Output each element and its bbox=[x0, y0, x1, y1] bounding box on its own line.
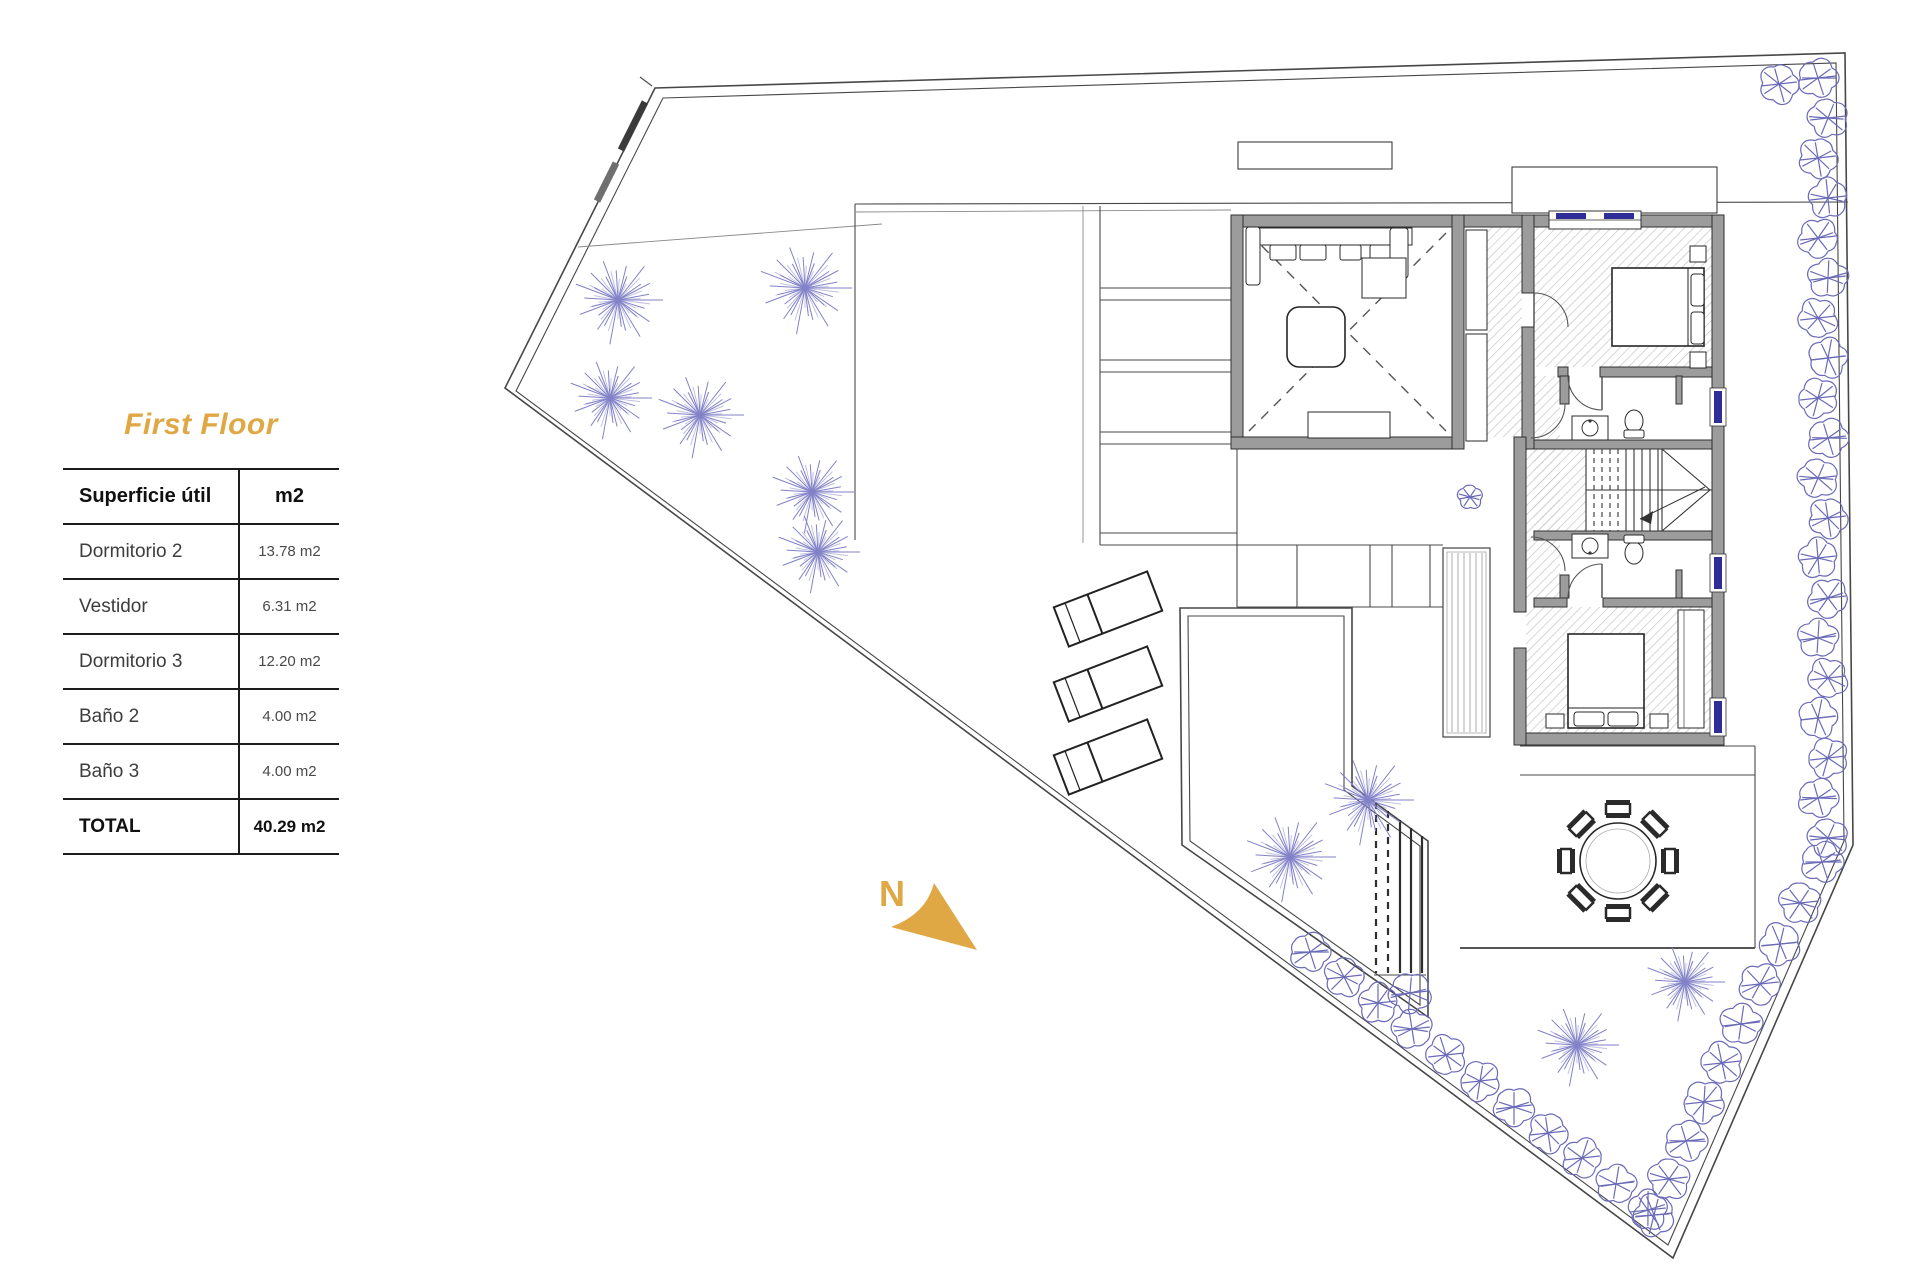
bush-icon bbox=[1391, 1009, 1432, 1048]
bush-icon bbox=[1798, 537, 1836, 578]
bush-icon bbox=[1808, 658, 1848, 697]
gallery-railing bbox=[1466, 230, 1487, 441]
room-label: TOTAL bbox=[63, 800, 240, 853]
bush-icon bbox=[1799, 378, 1837, 418]
shelf bbox=[1308, 412, 1390, 438]
sofa bbox=[1246, 227, 1412, 298]
bush-icon bbox=[1808, 177, 1846, 218]
legend-panel: First Floor Superficie útil m2 Dormitori… bbox=[63, 408, 339, 855]
room-label: Dormitorio 2 bbox=[63, 525, 240, 578]
bush-icon bbox=[1798, 618, 1839, 656]
bed-2 bbox=[1612, 268, 1704, 346]
bush-icon bbox=[1633, 1194, 1673, 1237]
bush-icon bbox=[1799, 778, 1839, 817]
bush-icon bbox=[1666, 1120, 1708, 1161]
coffee-table bbox=[1287, 307, 1345, 367]
void-room bbox=[1246, 227, 1446, 438]
bush-icon bbox=[1684, 1082, 1724, 1124]
north-label: N bbox=[879, 873, 905, 914]
bush-icon bbox=[1648, 1159, 1690, 1198]
bush-icon bbox=[1529, 1114, 1568, 1154]
toilet-3 bbox=[1625, 542, 1643, 564]
bush-icon bbox=[1808, 258, 1849, 296]
tree-icon bbox=[571, 362, 652, 439]
room-area-value: 13.78 m2 bbox=[240, 543, 339, 560]
bush-icon bbox=[1761, 65, 1799, 105]
bush-icon bbox=[1759, 923, 1799, 966]
chair bbox=[1606, 800, 1630, 818]
bush-icon bbox=[1426, 1035, 1465, 1075]
bush-icon bbox=[1779, 883, 1821, 922]
bush-icon bbox=[1798, 299, 1838, 338]
floor-plan-sheet: N First Floor Superficie útil m2 Dormito… bbox=[0, 0, 1920, 1280]
chair bbox=[1557, 849, 1575, 873]
bush-icon bbox=[1799, 58, 1839, 97]
room-area-value: 6.31 m2 bbox=[240, 598, 339, 615]
table-row: Vestidor6.31 m2 bbox=[63, 580, 339, 635]
bush-icon bbox=[1798, 219, 1838, 258]
room-label: Dormitorio 3 bbox=[63, 635, 240, 688]
chair bbox=[1661, 849, 1679, 873]
deck-strip bbox=[1443, 548, 1490, 737]
tree-icon bbox=[779, 516, 860, 593]
bush-icon bbox=[1797, 459, 1837, 497]
bush-icon bbox=[1807, 819, 1847, 857]
area-table: Superficie útil m2 Dormitorio 213.78 m2V… bbox=[63, 468, 339, 855]
bush-icon bbox=[1628, 1189, 1667, 1229]
floor-title: First Floor bbox=[63, 408, 339, 442]
room-label: Baño 2 bbox=[63, 690, 240, 743]
chair bbox=[1606, 904, 1630, 922]
bush-icon bbox=[1739, 964, 1780, 1005]
bush-icon bbox=[1324, 958, 1364, 997]
bush-icon bbox=[1457, 485, 1482, 508]
bush-icon bbox=[1493, 1089, 1534, 1127]
column-header-superficie: Superficie útil bbox=[63, 470, 240, 523]
tree-icon bbox=[1538, 1009, 1619, 1086]
roof-overhang bbox=[1512, 167, 1717, 213]
room-area-value: 4.00 m2 bbox=[240, 708, 339, 725]
tree-icon bbox=[1247, 817, 1336, 902]
tree-icon bbox=[576, 261, 663, 344]
room-label: Vestidor bbox=[63, 580, 240, 633]
north-arrow: N bbox=[879, 873, 977, 950]
table-row: Dormitorio 213.78 m2 bbox=[63, 525, 339, 580]
wardrobe bbox=[1678, 610, 1704, 728]
bush-icon bbox=[1809, 738, 1847, 778]
tree-icon bbox=[659, 377, 744, 458]
bush-icon bbox=[1807, 99, 1847, 137]
room-area-value: 4.00 m2 bbox=[240, 763, 339, 780]
room-area-value: 12.20 m2 bbox=[240, 653, 339, 670]
table-row: Baño 24.00 m2 bbox=[63, 690, 339, 745]
bush-icon bbox=[1799, 139, 1838, 179]
table-row: Dormitorio 312.20 m2 bbox=[63, 635, 339, 690]
bush-icon bbox=[1809, 499, 1848, 539]
bush-icon bbox=[1701, 1041, 1741, 1083]
bush-icon bbox=[1720, 1003, 1763, 1043]
room-area-value: 40.29 m2 bbox=[240, 817, 339, 837]
bush-icon bbox=[1799, 697, 1838, 738]
staircase bbox=[1586, 449, 1712, 531]
table-total-row: TOTAL40.29 m2 bbox=[63, 800, 339, 855]
sun-loungers bbox=[1054, 571, 1162, 794]
tree-icon bbox=[761, 248, 852, 335]
skylight bbox=[1238, 142, 1392, 169]
bush-icon bbox=[1291, 932, 1331, 971]
bush-icon bbox=[1809, 337, 1848, 378]
bush-icon bbox=[1809, 418, 1849, 457]
dining-table bbox=[1557, 800, 1679, 922]
tree-icon bbox=[1648, 948, 1725, 1022]
column-header-m2: m2 bbox=[240, 485, 339, 508]
toilet-2 bbox=[1625, 410, 1643, 432]
room-label: Baño 3 bbox=[63, 745, 240, 798]
table-header-row: Superficie útil m2 bbox=[63, 470, 339, 525]
table-row: Baño 34.00 m2 bbox=[63, 745, 339, 800]
